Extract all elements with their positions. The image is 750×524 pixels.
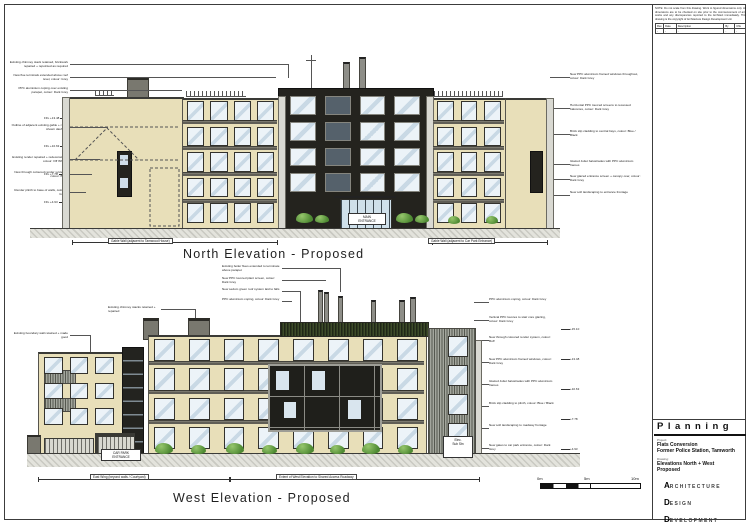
scale-bar-right	[590, 483, 641, 489]
car-park-entrance-label: CAR PARK ENTRANCE	[101, 449, 141, 461]
window-pane	[224, 368, 245, 390]
window-pane	[360, 96, 386, 115]
shrub	[398, 445, 413, 454]
annotation: Render plinth to base of walls, colour: …	[8, 189, 66, 197]
window-pane	[397, 368, 418, 390]
window-pane	[461, 203, 478, 223]
annotation: New flue terminals extended above roof l…	[8, 74, 68, 82]
window-pane	[257, 178, 274, 198]
shrub	[296, 213, 313, 223]
leader-line	[282, 280, 326, 281]
window-pane	[70, 383, 89, 400]
level-marker: +10.63	[560, 387, 579, 391]
level-marker: +4.93	[560, 447, 578, 451]
extent-label: Extent of West Elevation to Shared Acces…	[276, 474, 357, 480]
window-pane	[363, 339, 384, 361]
leader-line	[70, 90, 182, 91]
planning-header: Planning	[654, 420, 746, 436]
window-pane	[484, 178, 501, 198]
window-pane	[437, 101, 454, 121]
shrub	[396, 213, 413, 223]
leader-line	[70, 64, 288, 65]
scale-label: 5m	[584, 476, 590, 481]
substation-label: Elec. Sub Stn	[443, 436, 473, 458]
east-wing-label: East Wing (beyond walls / Courtyard)	[90, 474, 149, 480]
leader-line	[195, 309, 196, 318]
window-pane	[394, 148, 420, 167]
leader-line	[90, 335, 91, 352]
scale-label: 0m	[537, 476, 543, 481]
window-pane	[461, 101, 478, 121]
window-pane	[210, 127, 227, 147]
shrub	[362, 443, 380, 454]
leader-line	[282, 268, 340, 269]
window-pane	[234, 127, 251, 147]
dashed-existing-outline	[68, 120, 182, 230]
drawing-sheet: NOTE: Do not scale from this drawing. Wo…	[0, 0, 750, 524]
window-pane	[154, 398, 175, 420]
rev-cell: -	[676, 29, 724, 34]
rev-cell: -	[656, 29, 664, 34]
project-name: Flats Conversion Former Police Station, …	[657, 442, 746, 455]
window-grid	[437, 101, 501, 223]
notes-box: NOTE: Do not scale from this drawing. Wo…	[655, 7, 746, 34]
annotation: Existing render repaired + redecorated, …	[8, 156, 66, 164]
window-pane	[484, 152, 501, 172]
leader-line	[550, 77, 570, 78]
leader-line	[288, 64, 289, 78]
window-pane	[448, 394, 468, 415]
leader-line	[161, 309, 195, 310]
window-pane	[360, 122, 386, 141]
window-pane	[397, 398, 418, 420]
annotation: New soft landscaping to entrance frontag…	[570, 191, 642, 195]
ground-line	[30, 228, 560, 238]
pilaster	[278, 96, 286, 230]
pilaster	[426, 96, 434, 230]
annotation: New glazed entrance screen + canopy over…	[570, 175, 642, 183]
window-pane	[325, 173, 351, 192]
window-pane	[290, 148, 316, 167]
window-pane	[328, 339, 349, 361]
drawing-name: Elevations North + West Proposed	[657, 461, 746, 474]
annotation: New PPC aluminium framed windows, colour…	[489, 358, 555, 366]
window-pane	[44, 383, 63, 400]
window-pane	[437, 127, 454, 147]
revision-table: Rev Date Description By Chk - - - - -	[655, 23, 746, 34]
window-pane	[461, 152, 478, 172]
window-pane	[397, 339, 418, 361]
window-pane	[394, 122, 420, 141]
add-logo: ARCHITECTURE DESIGN DEVELOPMENT	[654, 476, 746, 524]
antenna-bar	[306, 60, 316, 61]
notes-paragraph: NOTE: Do not scale from this drawing. Wo…	[655, 7, 746, 21]
level-marker: +13.48	[560, 357, 579, 361]
window-pane	[325, 148, 351, 167]
rainwater-pipe	[546, 98, 554, 230]
scale-label: 10m	[631, 476, 639, 481]
dimension-line	[72, 242, 278, 243]
window-pane	[95, 408, 114, 425]
window-pane	[484, 101, 501, 121]
window-grid	[44, 357, 114, 425]
window-pane	[258, 339, 279, 361]
roof-railing	[186, 91, 246, 97]
leader-line	[474, 302, 489, 303]
window-pane	[210, 178, 227, 198]
window-pane	[187, 203, 204, 223]
leader-line	[300, 291, 301, 322]
window-pane	[44, 357, 63, 374]
annotation: New soft landscaping to roadway frontage	[489, 424, 555, 428]
window-pane	[234, 203, 251, 223]
roof-flue	[324, 292, 329, 326]
annotation: PPC aluminium coping, colour: Dark Grey	[489, 298, 555, 302]
shrub	[296, 443, 314, 454]
level-marker: +15.10	[560, 327, 579, 331]
window-pane	[189, 368, 210, 390]
window-pane	[360, 173, 386, 192]
leader-line	[474, 320, 489, 321]
window-pane	[461, 127, 478, 147]
annotation: Horizontal PPC louvred screens to recess…	[570, 104, 642, 112]
central-window-grid	[290, 96, 420, 192]
window-grid	[448, 336, 468, 444]
window-pane	[257, 127, 274, 147]
curtain-wall	[268, 364, 382, 432]
annotation: Brick slip cladding to central bays, col…	[570, 130, 642, 138]
window-pane	[257, 101, 274, 121]
annotation: Existing boundary wall retained + made g…	[10, 332, 68, 340]
window-pane	[290, 122, 316, 141]
annotation: PPC aluminium coping, colour: Dark Grey	[222, 298, 280, 302]
shrub	[155, 443, 173, 454]
shrub	[486, 216, 498, 224]
annotation: Brick slip cladding to plinth, colour: B…	[489, 402, 555, 406]
main-entrance-label: MAIN ENTRANCE	[348, 213, 386, 225]
title-block: Planning Project: Flats Conversion Forme…	[654, 420, 746, 524]
window-pane	[187, 178, 204, 198]
window-pane	[325, 122, 351, 141]
annotation: Glazed Juliet balustrades with PPC alumi…	[570, 160, 642, 168]
window-pane	[325, 96, 351, 115]
annotation: Existing chimney stacks retained + repai…	[108, 306, 160, 314]
window-pane	[154, 339, 175, 361]
window-pane	[290, 173, 316, 192]
window-pane	[394, 96, 420, 115]
window-pane	[448, 336, 468, 357]
window-pane	[224, 398, 245, 420]
north-elevation-title: North Elevation - Proposed	[183, 247, 364, 261]
shrub	[448, 216, 460, 224]
window-pane	[187, 127, 204, 147]
level-marker: +7.78	[560, 417, 578, 421]
roof-flue	[359, 57, 366, 92]
shrub	[191, 445, 206, 454]
window-pane	[70, 408, 89, 425]
window-pane	[95, 383, 114, 400]
leader-line	[340, 268, 341, 292]
leader-line	[282, 301, 292, 302]
window-pane	[484, 127, 501, 147]
window-pane	[437, 178, 454, 198]
window-grid	[187, 101, 274, 223]
shrub	[315, 215, 329, 223]
shrub	[330, 445, 345, 454]
annotation: New PPC louvred plant screen, colour: Da…	[222, 277, 280, 285]
annotation: Vertical PPC louvres to stair core glazi…	[489, 316, 555, 324]
window-pane	[394, 173, 420, 192]
roof-railing	[434, 91, 503, 97]
window-pane	[189, 398, 210, 420]
scale-bar-left	[540, 483, 592, 489]
green-roof-band	[280, 322, 429, 337]
window-pane	[224, 339, 245, 361]
window-pane	[234, 152, 251, 172]
window-pane	[448, 365, 468, 386]
window-pane	[257, 152, 274, 172]
annotation: New gates to car park entrance, colour: …	[489, 444, 555, 452]
window-pane	[210, 203, 227, 223]
window-pane	[234, 178, 251, 198]
annotation: Existing chimney stack retained, brickwo…	[8, 61, 68, 69]
annotation: New PPC aluminium framed windows through…	[570, 73, 642, 81]
entrance-canopy	[334, 196, 396, 198]
window-pane	[70, 357, 89, 374]
annotation: Existing boiler flues extended to termin…	[222, 265, 280, 273]
window-pane	[210, 152, 227, 172]
leader-line	[70, 335, 90, 336]
rev-cell: -	[724, 29, 735, 34]
rev-cell: -	[664, 29, 677, 34]
window-pane	[360, 148, 386, 167]
window-pane	[257, 203, 274, 223]
window-pane	[293, 339, 314, 361]
roof-flue	[318, 290, 323, 326]
window-pane	[437, 152, 454, 172]
annotation: PPC aluminium coping over existing parap…	[8, 87, 68, 95]
gable-label-left: Gable Wall (adjacent to Tamwood House)	[108, 238, 173, 244]
shrub	[415, 215, 429, 223]
rev-cell: -	[735, 29, 746, 34]
window-pane	[95, 357, 114, 374]
leader-line	[70, 77, 276, 78]
window-pane	[290, 96, 316, 115]
title-column-divider	[652, 4, 653, 520]
gable-label-right: Gable Wall (adjacent to Car Park Entranc…	[428, 238, 495, 244]
window-pane	[187, 152, 204, 172]
window-pane	[44, 408, 63, 425]
window-pane	[234, 101, 251, 121]
shrub	[262, 445, 277, 454]
window-pane	[461, 178, 478, 198]
window-pane	[187, 101, 204, 121]
leader-line	[282, 291, 300, 292]
annotation: Glazed Juliet balustrades with PPC alumi…	[489, 380, 555, 388]
window-pane	[189, 339, 210, 361]
annotation: Outline of adjacent existing gable + roo…	[8, 124, 66, 132]
gable-window-stack	[530, 151, 543, 193]
annotation: New sedum green roof system laid to fall…	[222, 288, 280, 292]
west-elevation-title: West Elevation - Proposed	[173, 491, 351, 505]
shrub	[226, 443, 244, 454]
window-pane	[154, 368, 175, 390]
window-pane	[210, 101, 227, 121]
annotation: New through coloured render system, colo…	[489, 336, 555, 344]
